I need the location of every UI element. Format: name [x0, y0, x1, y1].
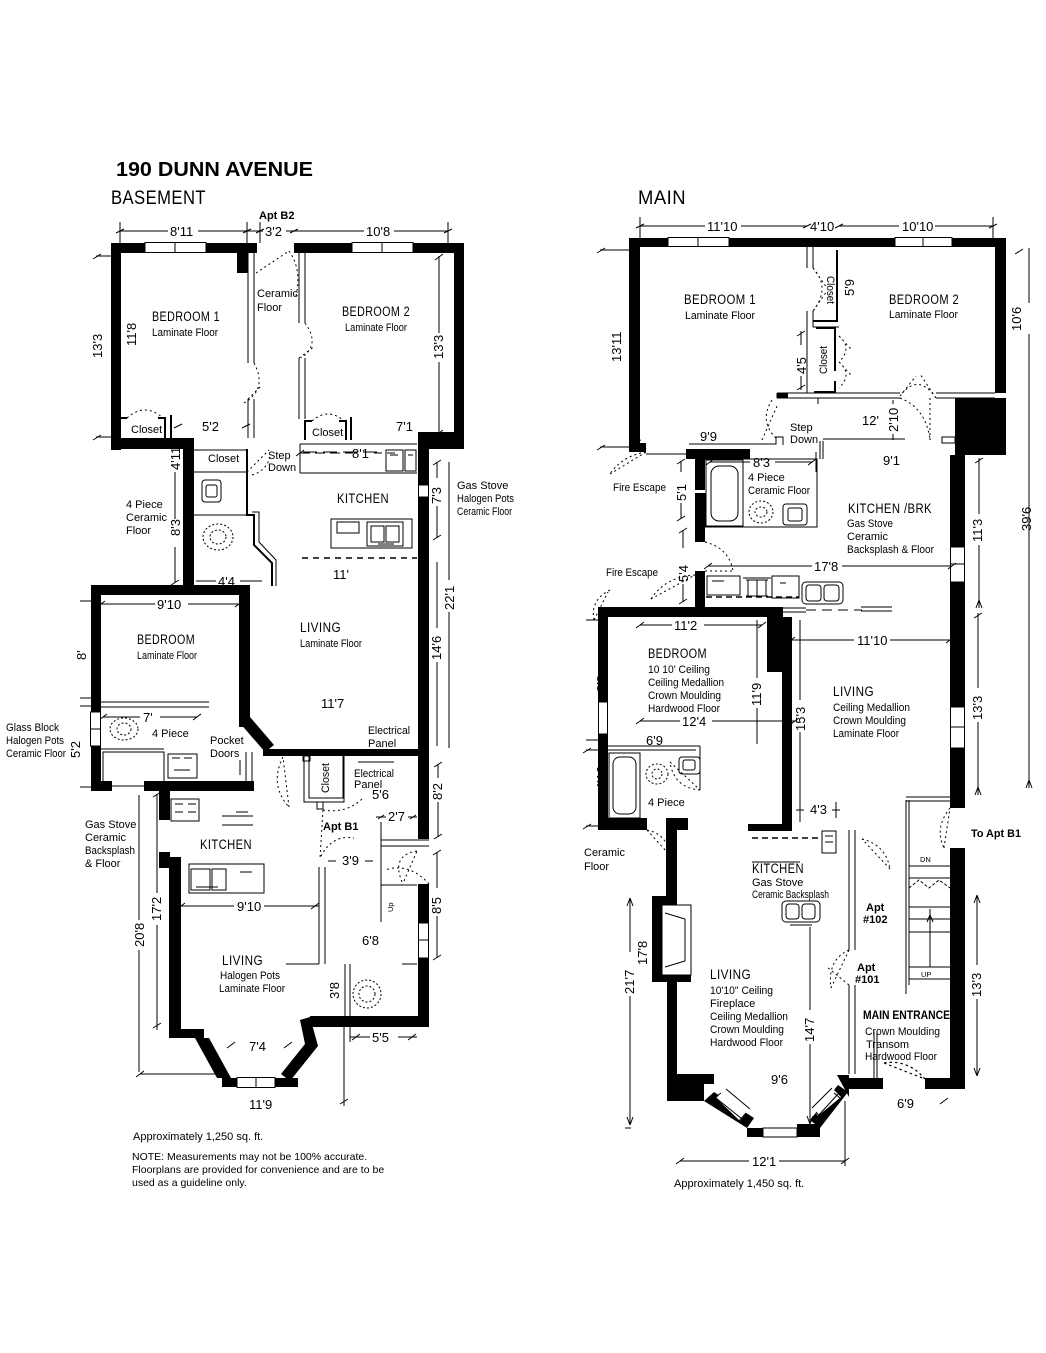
svg-text:Step: Step	[268, 450, 291, 462]
svg-text:BEDROOM 1: BEDROOM 1	[684, 292, 756, 307]
svg-text:Ceiling Medallion: Ceiling Medallion	[710, 1011, 788, 1023]
svg-text:6'8: 6'8	[362, 933, 379, 948]
svg-text:Apt B2: Apt B2	[259, 210, 294, 222]
svg-text:Down: Down	[790, 434, 818, 446]
svg-text:BEDROOM: BEDROOM	[137, 632, 195, 647]
svg-text:4'5: 4'5	[794, 357, 809, 374]
svg-text:used as a guideline only.: used as a guideline only.	[132, 1177, 247, 1189]
svg-text:Backsplash: Backsplash	[85, 845, 135, 857]
svg-text:11'10: 11'10	[857, 633, 887, 648]
svg-text:8'2: 8'2	[430, 783, 445, 800]
svg-text:8'5: 8'5	[429, 897, 444, 914]
svg-text:#102: #102	[863, 914, 887, 926]
svg-text:8'3: 8'3	[168, 519, 183, 536]
svg-text:Gas Stove: Gas Stove	[847, 518, 893, 530]
svg-text:15'3: 15'3	[793, 707, 808, 731]
svg-text:Laminate Floor: Laminate Floor	[219, 983, 285, 995]
svg-text:Hardwood Floor: Hardwood Floor	[865, 1051, 937, 1063]
svg-text:Closet: Closet	[131, 424, 162, 436]
svg-text:4 Piece: 4 Piece	[648, 797, 685, 809]
svg-text:11': 11'	[333, 567, 349, 582]
svg-text:8'8: 8'8	[594, 675, 609, 692]
svg-text:Pocket: Pocket	[210, 735, 244, 747]
svg-text:11'2: 11'2	[674, 618, 697, 633]
svg-text:Floor: Floor	[584, 861, 609, 873]
svg-text:Ceramic: Ceramic	[126, 512, 167, 524]
svg-text:4 Piece: 4 Piece	[126, 499, 163, 511]
svg-text:Floorplans are provided for co: Floorplans are provided for convenience …	[132, 1164, 384, 1176]
svg-text:Closet: Closet	[320, 763, 332, 793]
svg-text:5'6: 5'6	[372, 787, 389, 802]
svg-text:9'10: 9'10	[157, 597, 181, 612]
svg-text:Ceramic Floor: Ceramic Floor	[457, 506, 512, 518]
svg-text:10'6: 10'6	[1009, 307, 1024, 331]
svg-text:10'10: 10'10	[902, 219, 933, 234]
svg-text:BEDROOM: BEDROOM	[648, 646, 707, 661]
svg-text:KITCHEN: KITCHEN	[752, 861, 804, 876]
svg-text:Laminate Floor: Laminate Floor	[137, 650, 197, 662]
svg-text:Laminate Floor: Laminate Floor	[833, 728, 899, 740]
svg-text:Up: Up	[386, 902, 395, 912]
svg-text:Apt B1: Apt B1	[323, 821, 358, 833]
svg-text:Ceiling Medallion: Ceiling Medallion	[648, 677, 724, 689]
svg-text:14'6: 14'6	[429, 636, 444, 660]
svg-text:LIVING: LIVING	[222, 953, 263, 968]
svg-text:LIVING: LIVING	[710, 967, 751, 982]
svg-text:11'3: 11'3	[970, 519, 985, 542]
svg-text:4'10: 4'10	[810, 219, 834, 234]
svg-text:13'3: 13'3	[970, 696, 985, 720]
svg-text:Crown Moulding: Crown Moulding	[710, 1024, 784, 1036]
svg-text:Closet: Closet	[208, 453, 239, 465]
svg-text:Laminate Floor: Laminate Floor	[300, 638, 362, 650]
svg-text:Laminate Floor: Laminate Floor	[345, 322, 407, 334]
svg-text:4 Piece: 4 Piece	[748, 472, 785, 484]
svg-text:10'8: 10'8	[366, 224, 390, 239]
svg-text:Floor: Floor	[126, 525, 151, 537]
svg-text:17'2: 17'2	[149, 897, 164, 921]
svg-text:Approximately 1,250 sq. ft.: Approximately 1,250 sq. ft.	[133, 1131, 263, 1143]
svg-text:BEDROOM 2: BEDROOM 2	[889, 292, 959, 307]
svg-text:Crown Moulding: Crown Moulding	[865, 1026, 940, 1038]
svg-text:Glass Block: Glass Block	[6, 722, 59, 734]
svg-text:Down: Down	[268, 462, 296, 474]
svg-text:22'1: 22'1	[442, 586, 457, 610]
svg-text:Ceramic Floor: Ceramic Floor	[6, 748, 66, 760]
svg-text:Electrical: Electrical	[368, 725, 410, 737]
svg-text:190 DUNN AVENUE: 190 DUNN AVENUE	[116, 159, 313, 181]
svg-text:Halogen Pots: Halogen Pots	[457, 493, 514, 505]
svg-text:Ceramic: Ceramic	[85, 832, 126, 844]
svg-text:Doors: Doors	[210, 748, 240, 760]
svg-text:39'6: 39'6	[1019, 507, 1034, 531]
svg-text:To Apt B1: To Apt B1	[971, 828, 1021, 840]
svg-text:Gas Stove: Gas Stove	[752, 877, 803, 889]
svg-text:DN: DN	[920, 855, 931, 864]
svg-text:9'1: 9'1	[883, 453, 900, 468]
svg-text:Backsplash & Floor: Backsplash & Floor	[847, 544, 934, 556]
svg-text:BASEMENT: BASEMENT	[111, 188, 206, 209]
svg-text:Hardwood Floor: Hardwood Floor	[710, 1037, 783, 1049]
svg-text:Laminate Floor: Laminate Floor	[152, 327, 218, 339]
svg-text:& Floor: & Floor	[85, 858, 121, 870]
svg-text:12'1: 12'1	[752, 1154, 776, 1169]
svg-text:12'4: 12'4	[682, 714, 706, 729]
svg-text:Gas Stove: Gas Stove	[85, 819, 136, 831]
svg-text:Floor: Floor	[257, 302, 282, 314]
svg-text:KITCHEN /BRK: KITCHEN /BRK	[848, 501, 932, 516]
svg-text:#101: #101	[855, 974, 879, 986]
svg-text:13'11: 13'11	[609, 332, 624, 362]
svg-text:11'9: 11'9	[249, 1097, 272, 1112]
svg-text:Fire Escape: Fire Escape	[613, 482, 666, 494]
svg-text:BEDROOM 2: BEDROOM 2	[342, 304, 410, 319]
svg-text:14'7: 14'7	[802, 1018, 817, 1042]
svg-text:8'1: 8'1	[352, 446, 369, 461]
svg-text:Halogen Pots: Halogen Pots	[220, 970, 280, 982]
svg-text:Crown Moulding: Crown Moulding	[833, 715, 906, 727]
svg-text:Ceiling Medallion: Ceiling Medallion	[833, 702, 910, 714]
svg-text:13'3: 13'3	[431, 335, 446, 359]
svg-text:KITCHEN: KITCHEN	[200, 837, 252, 852]
svg-text:9'9: 9'9	[700, 429, 717, 444]
svg-text:3'8: 3'8	[327, 982, 342, 999]
svg-text:8'11: 8'11	[170, 224, 193, 239]
svg-text:9'10: 9'10	[237, 899, 261, 914]
svg-text:Ceramic: Ceramic	[584, 847, 625, 859]
svg-text:Fire Escape: Fire Escape	[606, 567, 658, 579]
svg-text:17'8: 17'8	[814, 559, 838, 574]
svg-text:MAIN ENTRANCE: MAIN ENTRANCE	[863, 1010, 950, 1022]
svg-text:11'9: 11'9	[749, 683, 764, 706]
svg-text:MAIN: MAIN	[638, 188, 686, 209]
svg-text:2'10: 2'10	[886, 408, 901, 432]
svg-text:Laminate Floor: Laminate Floor	[889, 309, 958, 321]
svg-text:7': 7'	[143, 710, 153, 725]
svg-text:Gas Stove: Gas Stove	[457, 480, 508, 492]
svg-text:Ceramic: Ceramic	[257, 288, 298, 300]
svg-text:Ceramic Backsplash: Ceramic Backsplash	[752, 889, 829, 901]
svg-text:20'8: 20'8	[132, 923, 147, 947]
svg-text:Apt: Apt	[866, 902, 885, 914]
svg-text:Closet: Closet	[312, 427, 343, 439]
svg-text:4 Piece: 4 Piece	[152, 728, 189, 740]
svg-text:3'9: 3'9	[342, 853, 359, 868]
svg-text:2'7: 2'7	[388, 809, 405, 824]
svg-text:13'3: 13'3	[969, 973, 984, 997]
svg-text:3'2: 3'2	[265, 224, 282, 239]
svg-text:10'10" Ceiling: 10'10" Ceiling	[710, 985, 773, 997]
svg-text:Approximately 1,450 sq. ft.: Approximately 1,450 sq. ft.	[674, 1178, 804, 1190]
svg-text:Ceramic Floor: Ceramic Floor	[748, 485, 810, 497]
svg-text:10 10' Ceiling: 10 10' Ceiling	[648, 664, 710, 676]
svg-text:5'4: 5'4	[676, 565, 691, 582]
svg-text:17'8: 17'8	[635, 941, 650, 965]
svg-text:4'10: 4'10	[594, 766, 609, 790]
svg-text:Ceramic: Ceramic	[847, 531, 888, 543]
svg-text:Closet: Closet	[824, 276, 836, 304]
svg-text:Apt: Apt	[857, 962, 876, 974]
svg-text:9'6: 9'6	[771, 1072, 788, 1087]
svg-text:8'3: 8'3	[753, 455, 770, 470]
svg-text:7'1: 7'1	[396, 419, 413, 434]
svg-text:Halogen Pots: Halogen Pots	[6, 735, 64, 747]
svg-text:5'5: 5'5	[372, 1030, 389, 1045]
svg-text:UP: UP	[921, 970, 931, 979]
svg-text:NOTE: Measurements may not b: NOTE: Measurements may not be 100% accur…	[132, 1151, 367, 1163]
svg-text:Fireplace: Fireplace	[710, 998, 755, 1010]
svg-text:Step: Step	[790, 422, 813, 434]
svg-text:4'11: 4'11	[168, 447, 183, 470]
svg-text:Laminate Floor: Laminate Floor	[685, 310, 755, 322]
svg-text:BEDROOM 1: BEDROOM 1	[152, 309, 220, 324]
svg-text:5'9: 5'9	[842, 279, 857, 296]
svg-text:Crown Moulding: Crown Moulding	[648, 690, 721, 702]
svg-text:5'1: 5'1	[674, 484, 689, 501]
svg-text:13'3: 13'3	[90, 334, 105, 358]
svg-text:12': 12'	[862, 413, 879, 428]
svg-text:7'4: 7'4	[249, 1039, 266, 1054]
svg-text:8': 8'	[74, 650, 89, 660]
svg-text:Panel: Panel	[368, 738, 396, 750]
svg-text:7'3: 7'3	[429, 487, 444, 504]
svg-text:5'2: 5'2	[202, 419, 219, 434]
svg-text:5'2: 5'2	[68, 741, 83, 758]
svg-text:LIVING: LIVING	[833, 684, 874, 699]
svg-text:4'3: 4'3	[810, 802, 827, 817]
svg-text:KITCHEN: KITCHEN	[337, 491, 389, 506]
svg-text:Transom: Transom	[866, 1039, 909, 1051]
svg-text:21'7: 21'7	[622, 970, 637, 994]
svg-text:LIVING: LIVING	[300, 620, 341, 635]
svg-text:6'9: 6'9	[897, 1096, 914, 1111]
svg-text:Closet: Closet	[818, 346, 830, 374]
svg-text:11'8: 11'8	[124, 323, 139, 346]
svg-text:11'10: 11'10	[707, 219, 737, 234]
svg-text:11'7: 11'7	[321, 696, 344, 711]
